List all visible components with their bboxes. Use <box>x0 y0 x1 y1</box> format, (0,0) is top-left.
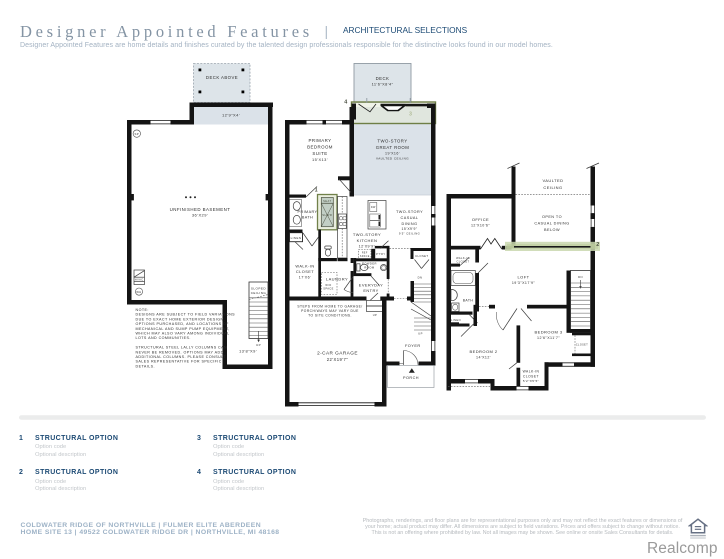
svg-text:WALK-IN: WALK-IN <box>295 264 314 269</box>
svg-text:SUITE: SUITE <box>312 151 327 156</box>
svg-text:NOTE:: NOTE: <box>136 308 149 312</box>
svg-text:WHICH MAY ALSO VARY AMONG INDI: WHICH MAY ALSO VARY AMONG INDIVIDUAL <box>136 332 230 336</box>
svg-text:EVERYDAY: EVERYDAY <box>359 283 383 288</box>
svg-text:13'8"X9': 13'8"X9' <box>239 348 257 353</box>
svg-text:CEILING: CEILING <box>251 291 267 295</box>
svg-text:OFFICE: OFFICE <box>472 217 489 222</box>
svg-text:GREAT ROOM: GREAT ROOM <box>376 145 409 150</box>
svg-text:P'TRY: P'TRY <box>376 253 385 256</box>
svg-text:HVAC: HVAC <box>135 278 144 281</box>
svg-text:5'2"X5'5": 5'2"X5'5" <box>523 379 539 383</box>
svg-text:CASUAL DINING: CASUAL DINING <box>534 221 569 225</box>
svg-text:WH: WH <box>136 290 141 294</box>
svg-text:BATH: BATH <box>463 299 474 303</box>
svg-text:TWO-STORY: TWO-STORY <box>396 210 423 214</box>
svg-text:UNFINISHED BASEMENT: UNFINISHED BASEMENT <box>170 207 231 212</box>
svg-text:DINING: DINING <box>402 222 418 226</box>
svg-text:SP: SP <box>134 132 139 136</box>
svg-text:ADDITIONAL COLUMNS. PLEASE CON: ADDITIONAL COLUMNS. PLEASE CONSULT <box>136 355 227 359</box>
svg-text:19'X16': 19'X16' <box>385 152 400 156</box>
svg-text:UP: UP <box>418 332 423 336</box>
svg-text:PORCH/WAYS MAY VARY DUE: PORCH/WAYS MAY VARY DUE <box>301 309 359 313</box>
svg-text:CLOSET: CLOSET <box>415 254 428 258</box>
svg-text:CEILING: CEILING <box>543 185 562 190</box>
svg-text:3: 3 <box>409 112 412 118</box>
svg-text:UP: UP <box>256 343 261 347</box>
svg-text:SPACE: SPACE <box>360 255 370 258</box>
svg-text:BEDROOM: BEDROOM <box>307 145 333 150</box>
svg-text:UP: UP <box>373 313 378 317</box>
svg-text:BEDROOM 2: BEDROOM 2 <box>469 349 497 354</box>
svg-text:CLOSET: CLOSET <box>296 269 314 274</box>
svg-text:DESIGNS ARE SUBJECT TO FIELD V: DESIGNS ARE SUBJECT TO FIELD VARIATIONS <box>136 313 236 317</box>
svg-text:WALK-IN: WALK-IN <box>456 256 470 260</box>
svg-text:LINEN: LINEN <box>451 318 461 322</box>
svg-text:LOTS AND COMMUNITIES.: LOTS AND COMMUNITIES. <box>136 336 191 340</box>
svg-text:DETAILS.: DETAILS. <box>136 364 156 368</box>
svg-text:DN: DN <box>578 275 583 279</box>
svg-text:BEDROOM 3: BEDROOM 3 <box>534 330 562 335</box>
svg-text:PRIMARY: PRIMARY <box>298 210 318 214</box>
svg-text:LOFT: LOFT <box>517 275 529 280</box>
svg-text:11'6"X8'4": 11'6"X8'4" <box>372 82 394 87</box>
svg-text:12'9"X4': 12'9"X4' <box>222 112 240 117</box>
svg-text:WALK-IN: WALK-IN <box>523 370 540 374</box>
svg-text:2-CAR GARAGE: 2-CAR GARAGE <box>317 351 358 356</box>
svg-text:DECK ABOVE: DECK ABOVE <box>206 75 238 80</box>
svg-text:POWDER: POWDER <box>362 262 377 266</box>
svg-text:VAULTED CEILING: VAULTED CEILING <box>376 157 409 161</box>
svg-text:DUE TO EXACT HOME EXTERIOR DES: DUE TO EXACT HOME EXTERIOR DESIGN, <box>136 317 226 321</box>
svg-text:OPEN TO: OPEN TO <box>542 215 562 219</box>
svg-text:ROOM: ROOM <box>364 266 374 270</box>
svg-text:STEPS FROM HOME TO GARAGE/: STEPS FROM HOME TO GARAGE/ <box>297 304 362 308</box>
svg-text:12'6"X11'7": 12'6"X11'7" <box>537 336 560 340</box>
svg-text:14'X12': 14'X12' <box>476 356 491 360</box>
svg-text:W/D: W/D <box>325 284 331 287</box>
svg-text:ENTRY: ENTRY <box>363 288 378 293</box>
svg-text:DECK: DECK <box>376 76 390 81</box>
svg-text:NEVER BE REMOVED. OPTIONS MAY: NEVER BE REMOVED. OPTIONS MAY ADD <box>136 350 224 354</box>
svg-text:PRIMARY: PRIMARY <box>308 138 331 143</box>
svg-text:1: 1 <box>315 188 318 194</box>
svg-text:2: 2 <box>596 242 599 248</box>
svg-text:36'X29': 36'X29' <box>192 213 208 218</box>
svg-text:DW: DW <box>371 206 376 209</box>
svg-text:9'5" CEILING: 9'5" CEILING <box>399 231 420 235</box>
svg-text:15'X9'9": 15'X9'9" <box>402 227 418 231</box>
svg-text:LINEN: LINEN <box>291 236 302 240</box>
svg-text:15'X13': 15'X13' <box>312 157 328 162</box>
svg-text:DN: DN <box>418 276 423 280</box>
svg-text:OPTIONS PURCHASED, AND LOCATIO: OPTIONS PURCHASED, AND LOCATIONS OF <box>136 322 230 326</box>
svg-text:12'X10'6": 12'X10'6" <box>471 224 490 228</box>
svg-text:CLOSET: CLOSET <box>523 374 539 378</box>
svg-text:KITCHEN: KITCHEN <box>357 238 378 243</box>
svg-text:REF: REF <box>362 253 368 255</box>
svg-text:4: 4 <box>344 100 347 106</box>
svg-text:TO SITE CONDITIONS.: TO SITE CONDITIONS. <box>308 314 352 318</box>
svg-text:22'X19'7": 22'X19'7" <box>327 357 349 362</box>
svg-text:SPACE: SPACE <box>323 288 334 291</box>
svg-text:17'X6': 17'X6' <box>299 275 311 279</box>
svg-text:CASUAL: CASUAL <box>401 216 419 220</box>
svg-text:CLOSET: CLOSET <box>576 343 588 346</box>
svg-text:STRUCTURAL STEEL LALLY COLUMNS: STRUCTURAL STEEL LALLY COLUMNS CAN <box>136 346 228 350</box>
svg-text:FOYER: FOYER <box>405 343 421 348</box>
svg-text:TWO-STORY: TWO-STORY <box>377 139 407 144</box>
svg-text:SALES REPRESENTATIVE FOR SPECI: SALES REPRESENTATIVE FOR SPECIFIC <box>136 360 222 364</box>
svg-text:VAULTED: VAULTED <box>542 178 563 183</box>
svg-text:MECHANICAL AND SUMP PUMP EQUIP: MECHANICAL AND SUMP PUMP EQUIPMENT, <box>136 327 230 331</box>
svg-text:PORCH: PORCH <box>403 376 419 380</box>
svg-text:19'3"X17'9": 19'3"X17'9" <box>512 281 536 285</box>
svg-text:BELOW: BELOW <box>544 228 560 232</box>
svg-text:BATH: BATH <box>302 216 313 220</box>
svg-text:12'X9'9": 12'X9'9" <box>359 244 376 248</box>
svg-text:TWO-STORY: TWO-STORY <box>353 232 381 237</box>
